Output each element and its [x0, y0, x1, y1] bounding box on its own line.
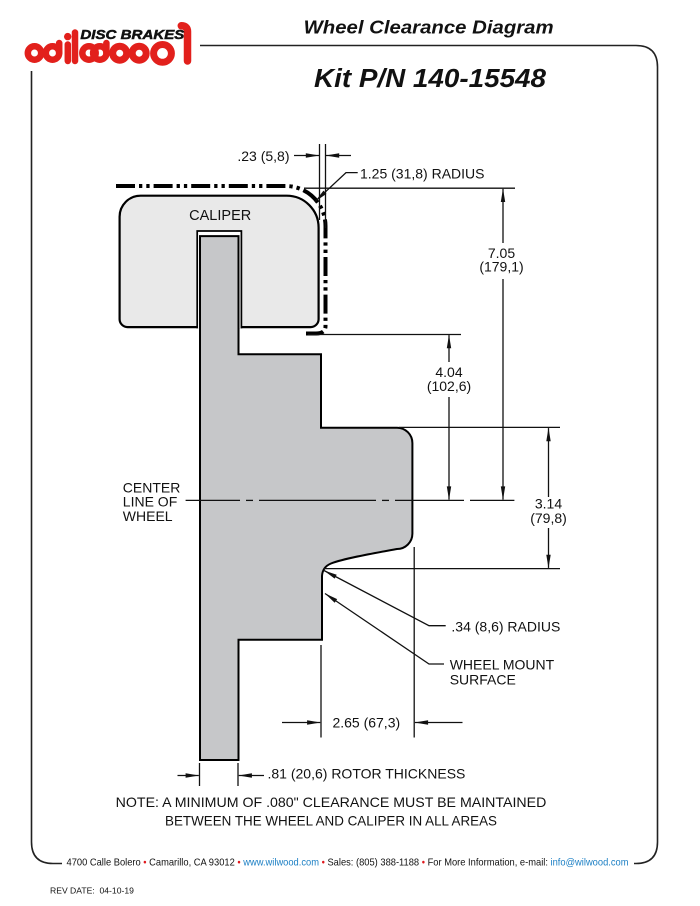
svg-text:WHEEL MOUNT: WHEEL MOUNT — [450, 657, 555, 673]
svg-text:REV DATE: 04-10-19: REV DATE: 04-10-19 — [50, 886, 134, 896]
svg-text:SURFACE: SURFACE — [450, 672, 516, 688]
svg-text:WHEEL: WHEEL — [123, 508, 173, 524]
svg-text:CALIPER: CALIPER — [189, 208, 251, 224]
svg-text:4700 Calle Bolero • Camarillo,: 4700 Calle Bolero • Camarillo, CA 93012 … — [67, 858, 629, 869]
svg-text:(102,6): (102,6) — [427, 378, 471, 394]
svg-text:Wheel Clearance Diagram: Wheel Clearance Diagram — [304, 17, 554, 38]
svg-text:(79,8): (79,8) — [530, 510, 567, 526]
svg-text:(179,1): (179,1) — [479, 259, 523, 275]
svg-text:3.14: 3.14 — [535, 495, 562, 511]
svg-text:.34 (8,6) RADIUS: .34 (8,6) RADIUS — [451, 618, 560, 634]
svg-text:Kit P/N 140-15548: Kit P/N 140-15548 — [314, 65, 547, 93]
svg-text:.23 (5,8): .23 (5,8) — [237, 148, 289, 164]
svg-text:BETWEEN THE WHEEL AND CALIPER: BETWEEN THE WHEEL AND CALIPER IN ALL ARE… — [165, 813, 497, 829]
svg-text:1.25 (31,8) RADIUS: 1.25 (31,8) RADIUS — [360, 165, 485, 181]
svg-text:DISC BRAKES: DISC BRAKES — [80, 27, 184, 42]
svg-text:.81 (20,6) ROTOR THICKNESS: .81 (20,6) ROTOR THICKNESS — [268, 766, 466, 782]
svg-text:NOTE: A MINIMUM OF .080" CLEAR: NOTE: A MINIMUM OF .080" CLEARANCE MUST … — [116, 794, 547, 810]
svg-text:2.65 (67,3): 2.65 (67,3) — [332, 715, 400, 731]
